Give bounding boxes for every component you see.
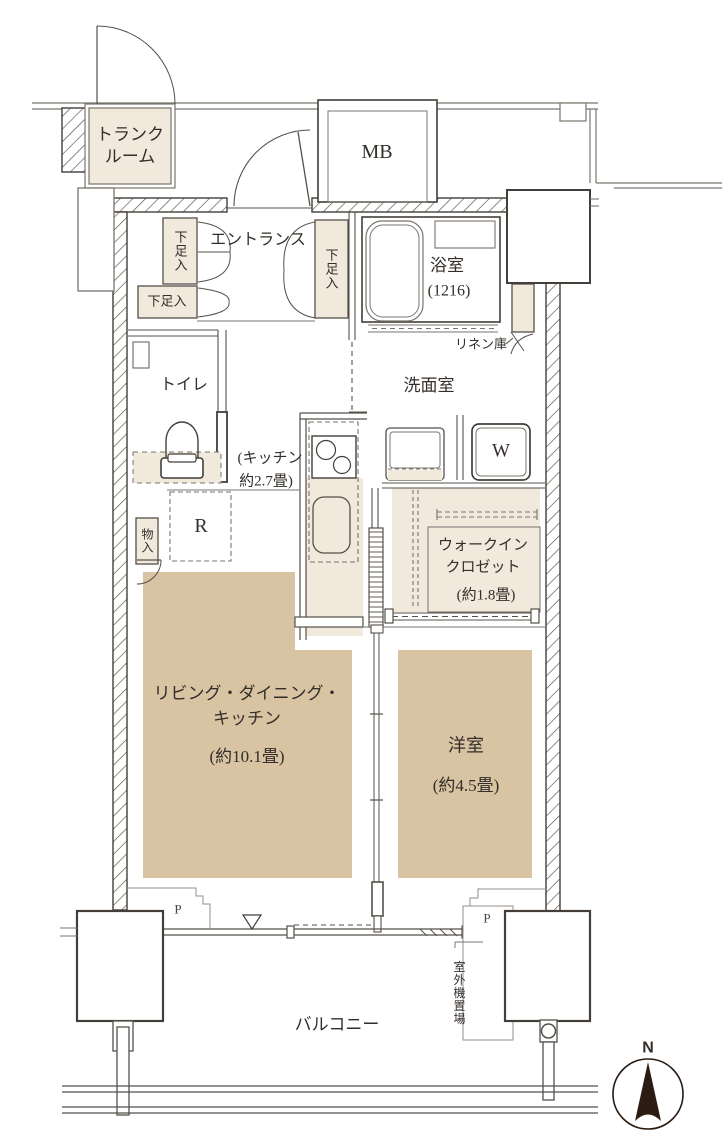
floor-plan-drawing <box>0 0 722 1140</box>
label-entrance: エントランス <box>210 231 306 252</box>
label-wic-line1: ウォークイン <box>438 536 528 556</box>
label-trunk-room: トランク ルーム <box>96 124 164 168</box>
label-pipe-right: P <box>483 911 490 928</box>
label-linen: リネン庫 <box>455 337 507 354</box>
label-fridge: R <box>194 513 207 539</box>
label-ldk-line1: リビング・ダイニング・ <box>154 683 341 705</box>
label-outdoor-unit: 室外機置場 <box>453 961 465 1026</box>
label-wic-line2: クロゼット <box>445 558 520 578</box>
vanity <box>386 428 444 480</box>
label-washer: W <box>492 440 510 465</box>
column-bottom-right <box>505 911 590 1021</box>
washroom <box>382 415 545 488</box>
label-balcony: バルコニー <box>295 1014 380 1036</box>
label-shoe-left-lower: 下足入 <box>147 294 186 311</box>
kitchen-end-wall <box>295 617 363 627</box>
pipe-notch <box>560 103 586 121</box>
toilet-room <box>128 330 227 483</box>
label-western-size: (約4.5畳) <box>433 775 500 797</box>
paper-holder <box>133 342 149 368</box>
bathtub <box>366 221 423 321</box>
toilet-fixture <box>161 422 203 478</box>
label-ldk-line2: キッチン <box>213 708 281 730</box>
balcony-railing <box>62 1086 598 1113</box>
label-ldk-size: (約10.1畳) <box>209 746 284 768</box>
label-wic-size: (約1.8畳) <box>457 586 516 606</box>
compass <box>613 1059 683 1129</box>
label-shoe-left-upper: 下足入 <box>174 230 187 272</box>
window-wall <box>163 915 505 938</box>
corridor-step <box>78 188 114 291</box>
label-shoe-right: 下足入 <box>325 248 338 290</box>
pocket-door <box>369 528 383 627</box>
bathroom-door <box>368 325 498 332</box>
label-storage: 物入 <box>141 528 153 554</box>
level-marker <box>243 915 261 929</box>
linen-storage <box>506 284 534 354</box>
label-washroom: 洗面室 <box>404 375 455 397</box>
room-partition <box>370 625 383 932</box>
label-bathroom-size: (1216) <box>428 282 471 303</box>
label-pipe-left: P <box>174 902 181 919</box>
column-bottom-left <box>77 911 163 1021</box>
label-meter-box: MB <box>361 139 392 165</box>
column-top-right <box>507 190 590 283</box>
label-compass-north: N <box>642 1039 654 1060</box>
label-toilet: トイレ <box>160 376 208 397</box>
stove <box>312 436 356 478</box>
label-kitchen-line1: (キッチン <box>238 449 303 469</box>
label-kitchen-line2: 約2.7畳) <box>239 472 293 492</box>
floor-plan: トランク ルーム MB エントランス 下足入 下足入 下足入 浴室 (1216)… <box>0 0 722 1140</box>
compass-arrow <box>635 1062 661 1121</box>
label-bathroom: 浴室 <box>430 255 464 277</box>
front-door <box>227 130 312 208</box>
label-western-room: 洋室 <box>448 734 484 757</box>
